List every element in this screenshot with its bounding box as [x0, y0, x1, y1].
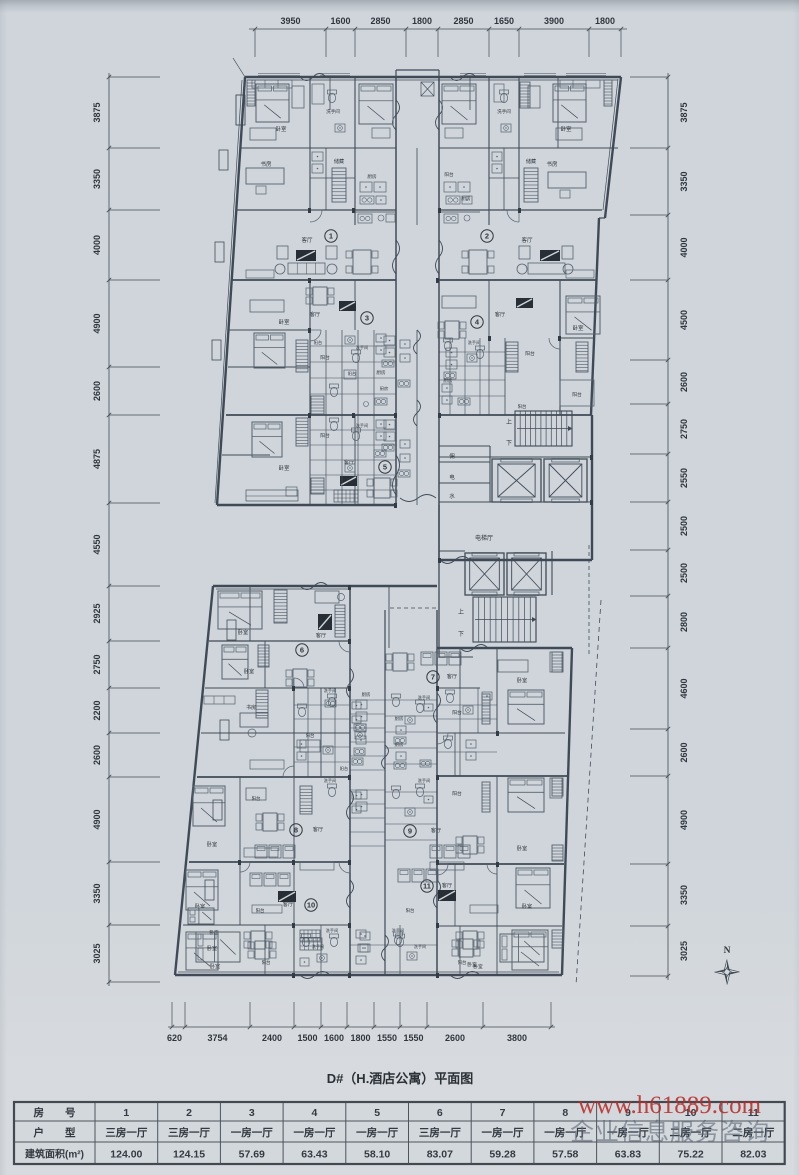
svg-text:3: 3 [365, 314, 369, 323]
svg-text:阳台: 阳台 [452, 790, 462, 797]
svg-text:卧室: 卧室 [560, 125, 572, 133]
svg-text:63.83: 63.83 [615, 1149, 641, 1161]
svg-text:1500: 1500 [297, 1033, 317, 1043]
svg-text:卧室: 卧室 [278, 318, 290, 326]
svg-text:客厅: 客厅 [442, 881, 452, 889]
svg-text:7: 7 [500, 1107, 506, 1119]
svg-text:洗手间: 洗手间 [326, 927, 339, 934]
svg-text:洗手间: 洗手间 [356, 422, 369, 429]
svg-text:4600: 4600 [679, 678, 689, 698]
svg-text:卧室: 卧室 [522, 902, 532, 910]
svg-text:卧室: 卧室 [278, 464, 290, 472]
svg-text:客厅: 客厅 [313, 825, 323, 833]
svg-text:客厅: 客厅 [316, 631, 326, 639]
svg-text:2850: 2850 [370, 16, 390, 26]
svg-text:1650: 1650 [494, 16, 514, 26]
svg-text:2750: 2750 [679, 419, 689, 439]
svg-text:5: 5 [383, 463, 387, 472]
svg-text:客厅: 客厅 [344, 458, 354, 466]
svg-text:卧室: 卧室 [209, 929, 219, 936]
svg-text:客厅: 客厅 [495, 310, 505, 318]
svg-text:4500: 4500 [679, 310, 689, 330]
svg-text:1600: 1600 [324, 1033, 344, 1043]
svg-text:厨房: 厨房 [443, 377, 453, 384]
svg-text:厨房: 厨房 [461, 195, 471, 202]
svg-text:4900: 4900 [92, 313, 102, 333]
svg-text:户 型: 户 型 [33, 1126, 76, 1139]
svg-text:卧室: 卧室 [517, 676, 527, 684]
svg-text:洗手间: 洗手间 [326, 108, 340, 115]
svg-text:阳台: 阳台 [406, 907, 415, 914]
svg-text:6: 6 [300, 646, 304, 655]
svg-text:1550: 1550 [403, 1033, 423, 1043]
svg-text:卧室: 卧室 [207, 945, 217, 952]
svg-text:厨房: 厨房 [380, 385, 388, 392]
svg-text:1600: 1600 [330, 16, 350, 26]
svg-text:2500: 2500 [679, 516, 689, 536]
svg-text:客厅: 客厅 [431, 826, 441, 834]
svg-text:客厅: 客厅 [310, 310, 320, 318]
svg-text:63.43: 63.43 [301, 1149, 327, 1161]
svg-text:三房一厅: 三房一厅 [419, 1126, 461, 1139]
svg-text:2400: 2400 [262, 1033, 282, 1043]
svg-text:厨房: 厨房 [376, 369, 386, 376]
svg-text:客厅: 客厅 [521, 236, 533, 244]
svg-text:124.00: 124.00 [110, 1149, 142, 1161]
svg-text:1800: 1800 [412, 16, 432, 26]
svg-text:D#（H.酒店公寓）平面图: D#（H.酒店公寓）平面图 [327, 1071, 474, 1086]
svg-text:2: 2 [485, 232, 489, 241]
svg-text:2600: 2600 [679, 742, 689, 762]
svg-text:阳台: 阳台 [572, 391, 582, 398]
svg-text:客厅: 客厅 [301, 236, 313, 244]
svg-text:3800: 3800 [507, 1033, 527, 1043]
svg-text:阳台: 阳台 [458, 959, 467, 966]
svg-text:2925: 2925 [92, 603, 102, 623]
svg-text:2850: 2850 [453, 16, 473, 26]
svg-text:2: 2 [186, 1107, 192, 1119]
svg-text:2500: 2500 [679, 563, 689, 583]
svg-text:N: N [724, 946, 731, 956]
svg-text:2800: 2800 [679, 612, 689, 632]
svg-text:620: 620 [167, 1033, 182, 1043]
svg-text:4: 4 [475, 318, 480, 327]
svg-text:1: 1 [329, 232, 333, 241]
svg-text:10: 10 [307, 901, 315, 910]
svg-text:厨房: 厨房 [395, 741, 404, 748]
svg-text:3875: 3875 [92, 102, 102, 122]
svg-text:2600: 2600 [92, 381, 102, 401]
svg-text:阳台: 阳台 [444, 171, 454, 178]
svg-text:企业信息服务咨询: 企业信息服务咨询 [570, 1119, 770, 1146]
svg-text:洗手间: 洗手间 [324, 777, 337, 784]
svg-text:3: 3 [249, 1107, 255, 1119]
svg-text:3025: 3025 [92, 943, 102, 963]
svg-text:卧室: 卧室 [238, 628, 248, 636]
svg-text:一房一厅: 一房一厅 [356, 1126, 398, 1139]
svg-text:阳台: 阳台 [306, 732, 315, 739]
svg-text:5: 5 [374, 1107, 380, 1119]
svg-text:1800: 1800 [350, 1033, 370, 1043]
svg-text:下: 下 [506, 440, 512, 447]
svg-text:储藏: 储藏 [526, 158, 536, 165]
svg-text:2200: 2200 [92, 700, 102, 720]
svg-text:8: 8 [562, 1107, 568, 1119]
svg-text:阳台: 阳台 [348, 370, 356, 377]
svg-text:4550: 4550 [92, 534, 102, 554]
svg-text:3754: 3754 [207, 1033, 227, 1043]
svg-text:洗手间: 洗手间 [356, 344, 369, 351]
svg-text:4900: 4900 [92, 809, 102, 829]
svg-text:卧室: 卧室 [195, 902, 205, 910]
svg-text:11: 11 [423, 882, 431, 891]
svg-text:8: 8 [294, 826, 298, 835]
svg-text:2550: 2550 [679, 468, 689, 488]
svg-text:阳台: 阳台 [262, 959, 271, 966]
svg-text:7: 7 [431, 673, 435, 682]
svg-text:3350: 3350 [679, 885, 689, 905]
svg-text:书房: 书房 [546, 160, 558, 168]
svg-text:洗手间: 洗手间 [324, 687, 337, 694]
svg-text:书房: 书房 [246, 704, 256, 711]
svg-text:3350: 3350 [92, 883, 102, 903]
svg-text:洗手间: 洗手间 [418, 777, 431, 784]
svg-text:83.07: 83.07 [427, 1149, 453, 1161]
svg-text:储藏: 储藏 [334, 158, 344, 165]
svg-text:卧室: 卧室 [207, 840, 217, 848]
svg-text:厨房: 厨房 [362, 691, 371, 698]
svg-text:阳台: 阳台 [452, 709, 462, 716]
svg-text:阳台: 阳台 [320, 354, 330, 361]
svg-text:82.03: 82.03 [740, 1149, 766, 1161]
svg-text:建筑面积(m²): 建筑面积(m²) [24, 1148, 84, 1161]
svg-text:4875: 4875 [92, 449, 102, 469]
svg-text:6: 6 [437, 1107, 443, 1119]
svg-text:客厅: 客厅 [447, 672, 457, 680]
svg-text:书房: 书房 [260, 160, 272, 168]
svg-text:3025: 3025 [679, 941, 689, 961]
svg-text:卧室: 卧室 [244, 667, 254, 675]
svg-text:洗手间: 洗手间 [497, 108, 511, 115]
svg-text:阳台: 阳台 [340, 765, 348, 772]
svg-text:上: 上 [506, 418, 512, 426]
svg-text:一房一厅: 一房一厅 [231, 1126, 273, 1139]
svg-text:三房一厅: 三房一厅 [105, 1126, 147, 1139]
svg-text:阳台: 阳台 [320, 432, 330, 439]
svg-text:阳台: 阳台 [525, 350, 535, 357]
svg-text:4: 4 [312, 1107, 318, 1119]
svg-text:75.22: 75.22 [678, 1149, 704, 1161]
svg-text:3350: 3350 [92, 169, 102, 189]
svg-text:厨房: 厨房 [367, 173, 377, 180]
svg-text:卧室: 卧室 [572, 324, 584, 332]
svg-text:上: 上 [458, 608, 464, 616]
svg-text:4900: 4900 [679, 810, 689, 830]
svg-text:2600: 2600 [679, 372, 689, 392]
svg-text:阳台: 阳台 [252, 795, 261, 802]
svg-text:2600: 2600 [92, 745, 102, 765]
svg-text:58.10: 58.10 [364, 1149, 390, 1161]
svg-text:洗手间: 洗手间 [312, 943, 324, 949]
svg-text:www.h61889.com: www.h61889.com [578, 1092, 762, 1119]
svg-text:佣: 佣 [449, 452, 455, 460]
svg-text:57.58: 57.58 [552, 1149, 578, 1161]
svg-text:一房一厅: 一房一厅 [482, 1126, 524, 1139]
svg-text:3875: 3875 [679, 102, 689, 122]
svg-text:卧室: 卧室 [473, 963, 483, 970]
svg-text:三房一厅: 三房一厅 [168, 1126, 210, 1139]
svg-text:3350: 3350 [679, 171, 689, 191]
svg-text:下: 下 [458, 631, 464, 638]
svg-text:电梯厅: 电梯厅 [475, 534, 493, 542]
svg-text:2600: 2600 [445, 1033, 465, 1043]
svg-text:59.28: 59.28 [489, 1149, 515, 1161]
svg-text:水: 水 [449, 492, 455, 500]
svg-text:3950: 3950 [280, 16, 300, 26]
svg-text:1800: 1800 [595, 16, 615, 26]
svg-text:卧室: 卧室 [210, 962, 220, 970]
svg-text:一房一厅: 一房一厅 [293, 1126, 335, 1139]
svg-text:房 号: 房 号 [34, 1106, 76, 1119]
svg-text:1: 1 [123, 1107, 129, 1119]
svg-text:57.69: 57.69 [239, 1149, 265, 1161]
svg-text:3900: 3900 [544, 16, 564, 26]
svg-text:洗手间: 洗手间 [468, 339, 481, 346]
svg-text:卧室: 卧室 [517, 844, 527, 852]
svg-text:9: 9 [408, 827, 412, 836]
svg-text:124.15: 124.15 [173, 1149, 205, 1161]
svg-text:4000: 4000 [679, 237, 689, 257]
svg-text:4000: 4000 [92, 235, 102, 255]
svg-text:卧室: 卧室 [275, 125, 287, 133]
svg-text:阳台: 阳台 [518, 403, 527, 410]
svg-text:2750: 2750 [92, 654, 102, 674]
svg-text:1550: 1550 [377, 1033, 397, 1043]
svg-text:电: 电 [449, 473, 455, 481]
svg-text:洗手间: 洗手间 [414, 943, 426, 949]
